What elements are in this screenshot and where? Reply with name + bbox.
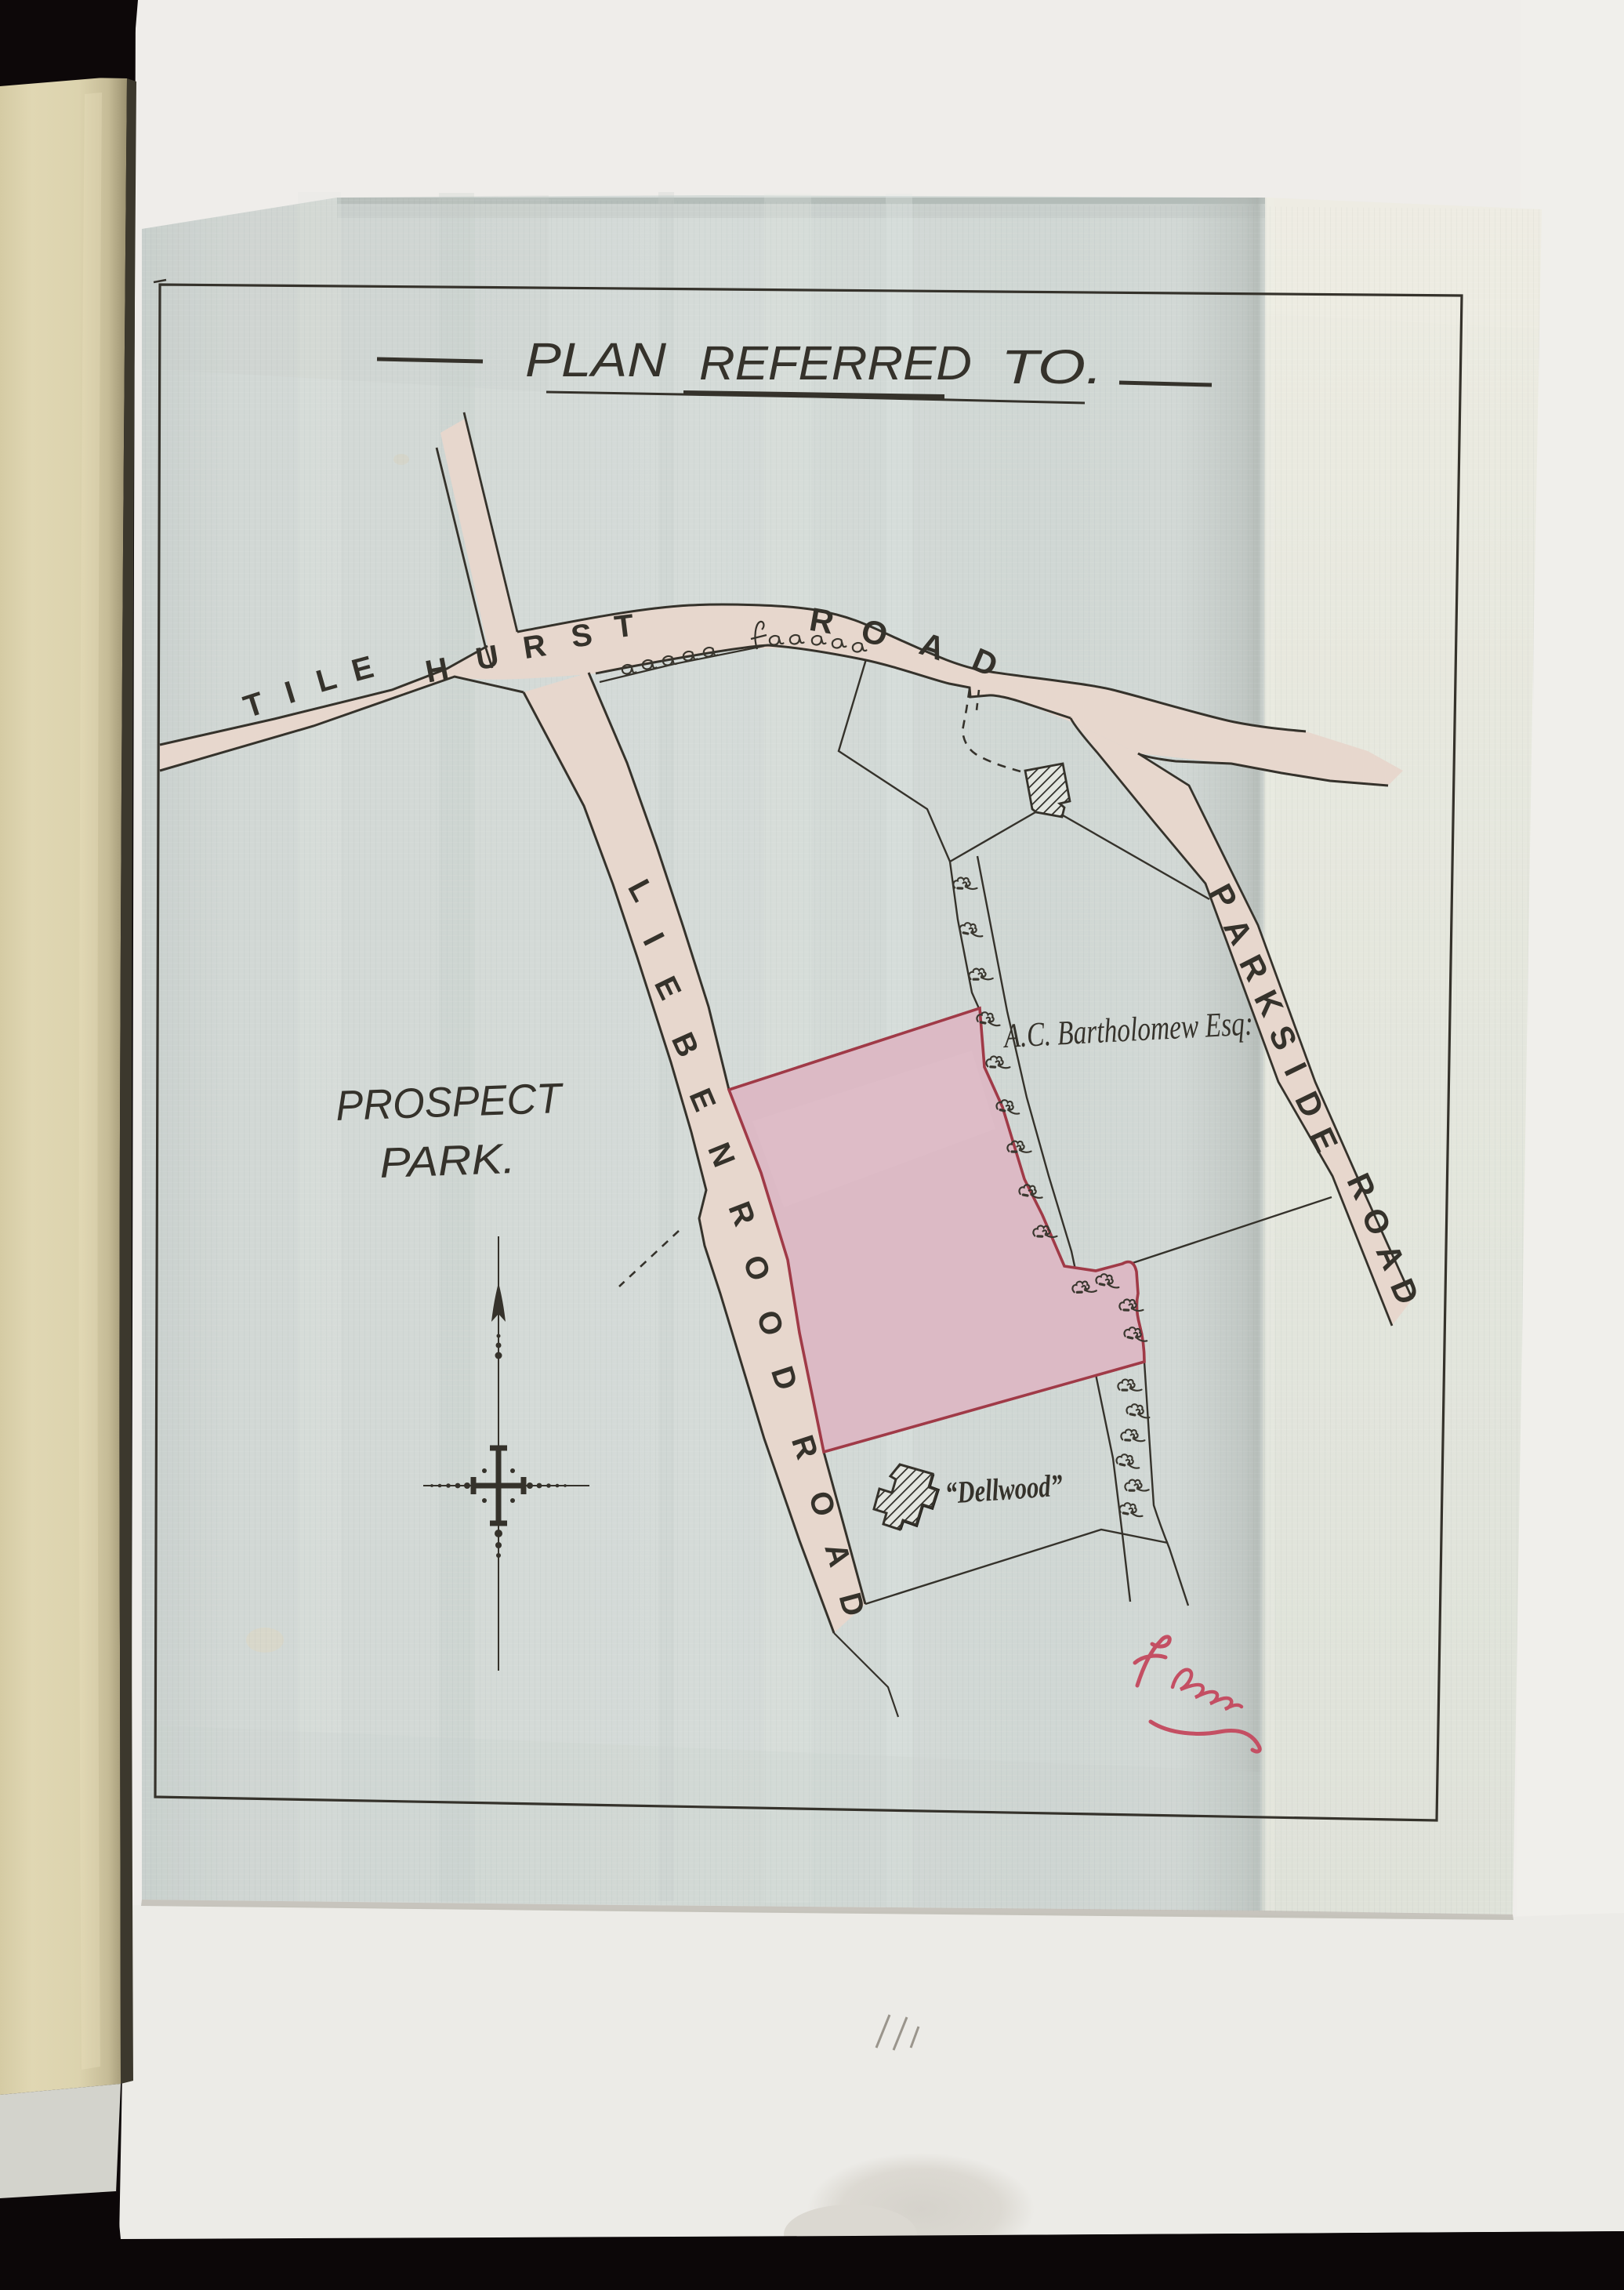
- svg-text:REFERRED: REFERRED: [699, 336, 972, 390]
- svg-text:TO.: TO.: [1001, 340, 1103, 394]
- svg-text:PARK.: PARK.: [379, 1135, 516, 1187]
- svg-text:PLAN: PLAN: [525, 333, 667, 387]
- svg-text:PROSPECT: PROSPECT: [335, 1075, 565, 1130]
